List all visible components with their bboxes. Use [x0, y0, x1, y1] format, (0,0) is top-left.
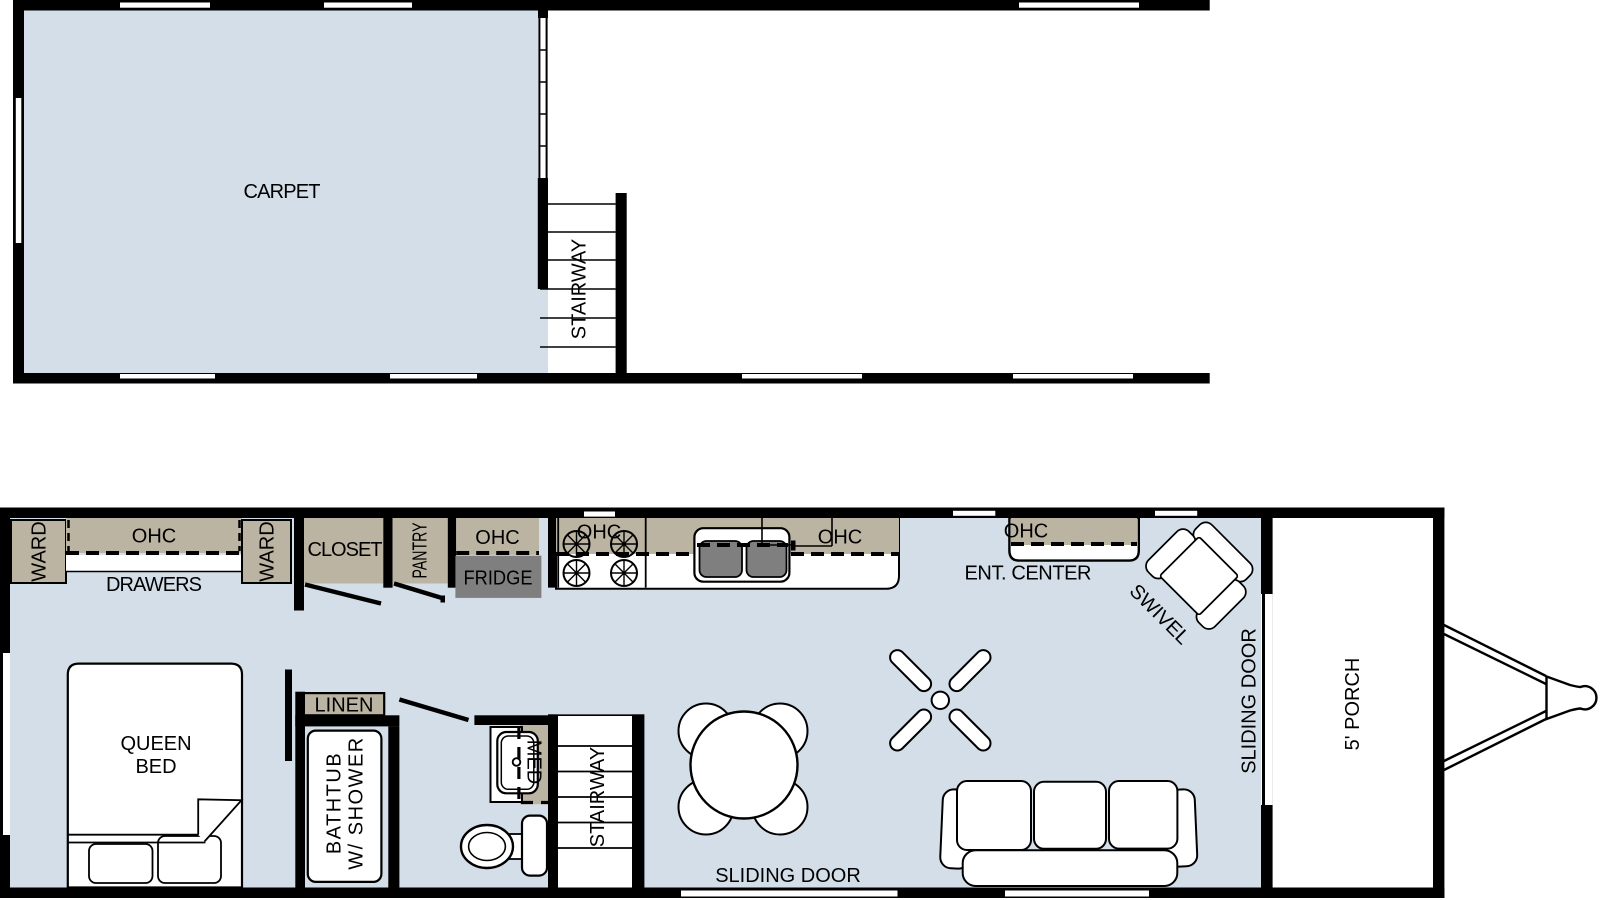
svg-text:WARD: WARD — [29, 521, 51, 581]
svg-text:W/ SHOWER: W/ SHOWER — [346, 736, 368, 870]
svg-text:SLIDING DOOR: SLIDING DOOR — [715, 865, 861, 887]
svg-text:LINEN: LINEN — [315, 695, 374, 717]
svg-text:MED: MED — [523, 740, 545, 784]
svg-text:OHC: OHC — [475, 527, 519, 549]
svg-text:FRIDGE: FRIDGE — [464, 568, 533, 590]
svg-text:BED: BED — [135, 756, 176, 778]
svg-text:ENT. CENTER: ENT. CENTER — [965, 563, 1092, 585]
svg-text:DRAWERS: DRAWERS — [106, 574, 202, 596]
svg-text:OHC: OHC — [132, 526, 176, 548]
svg-text:OHC: OHC — [818, 527, 862, 549]
svg-text:CARPET: CARPET — [244, 181, 321, 203]
svg-text:OHC: OHC — [577, 522, 621, 544]
svg-text:SLIDING DOOR: SLIDING DOOR — [1239, 628, 1261, 774]
svg-text:STAIRWAY: STAIRWAY — [587, 747, 609, 847]
svg-text:PANTRY: PANTRY — [410, 523, 432, 579]
svg-text:CLOSET: CLOSET — [308, 539, 383, 561]
svg-text:OHC: OHC — [1004, 521, 1048, 543]
svg-text:BATHTUB: BATHTUB — [324, 752, 346, 854]
svg-text:QUEEN: QUEEN — [120, 733, 191, 755]
svg-text:STAIRWAY: STAIRWAY — [569, 239, 591, 339]
svg-text:WARD: WARD — [257, 521, 279, 581]
svg-text:5' PORCH: 5' PORCH — [1342, 658, 1364, 751]
